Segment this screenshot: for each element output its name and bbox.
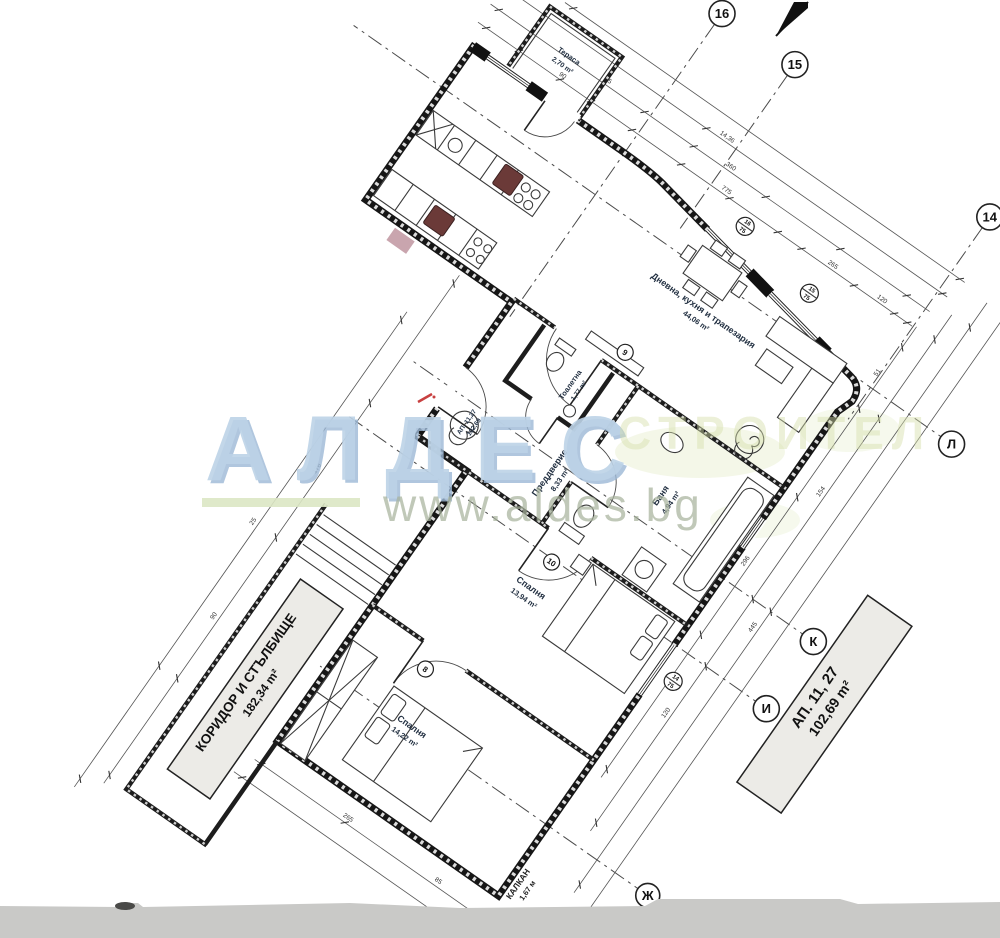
dim-value: 90 — [209, 611, 219, 621]
dim-value: 265 — [826, 259, 839, 271]
dim-value: 775 — [720, 185, 733, 197]
axis-line-Zh — [320, 666, 648, 895]
grid-bubble-14: 14 — [977, 204, 1000, 230]
dim-value: 445 — [747, 621, 759, 634]
grid-bubble-label: 15 — [788, 57, 802, 72]
grid-bubble-15: 15 — [782, 52, 808, 78]
scanned-floorplan-page: 90 775 265 120 85 360 14,36 51 296 154 1… — [0, 0, 1000, 938]
window-tag: 15 75 — [797, 281, 822, 306]
dim-value: 120 — [660, 706, 672, 719]
grid-bubble-L: Л — [939, 431, 965, 457]
dim-value: 120 — [875, 294, 888, 306]
kitchen-fixtures — [374, 110, 550, 277]
watermark-site-url: www.aldes.bg — [382, 479, 703, 531]
windows — [238, 55, 892, 696]
coffee-table — [755, 349, 793, 384]
watermark-underline-bar — [202, 498, 360, 507]
window-tag: 16 75 — [733, 214, 758, 239]
axis-line-14 — [848, 228, 982, 420]
door-bedroom2 — [393, 641, 423, 684]
grid-bubble-label: И — [762, 701, 771, 716]
dim-value: 85 — [433, 876, 443, 886]
grid-bubble-label: 16 — [715, 6, 729, 21]
grid-bubble-16: 16 — [709, 1, 735, 27]
door-terrace — [524, 101, 545, 130]
floorplan-canvas: 90 775 265 120 85 360 14,36 51 296 154 1… — [0, 0, 1000, 938]
ink-smudge — [115, 902, 135, 910]
dim-value: 51 — [873, 368, 883, 378]
north-arrow-icon — [776, 2, 808, 36]
dim-value: 154 — [815, 485, 827, 498]
grid-bubble-label: Л — [947, 437, 956, 452]
grid-bubble-label: Ж — [641, 888, 654, 903]
grid-bubble-label: 14 — [983, 209, 998, 224]
grid-bubble-K: К — [800, 629, 826, 655]
grid-bubble-I: И — [753, 696, 779, 722]
grid-bubble-label: К — [809, 634, 817, 649]
window-tag: 14 75 — [661, 669, 686, 694]
dim-value: 296 — [740, 554, 752, 567]
kalkan-note: КАЛКАН 1,67 м — [504, 867, 541, 908]
axis-line-15 — [680, 75, 787, 228]
scan-edge — [0, 899, 1000, 938]
watermark-secondary: СТРОИТЕЛ — [618, 407, 932, 459]
bedroom2-furniture — [281, 640, 491, 840]
watermark: АЛДЕС АЛДЕС www.aldes.bg СТРОИТЕЛ — [202, 398, 932, 531]
dim-value: 360 — [724, 161, 737, 173]
dim-value: 25 — [248, 516, 258, 526]
terrace-door-gap — [542, 92, 582, 125]
